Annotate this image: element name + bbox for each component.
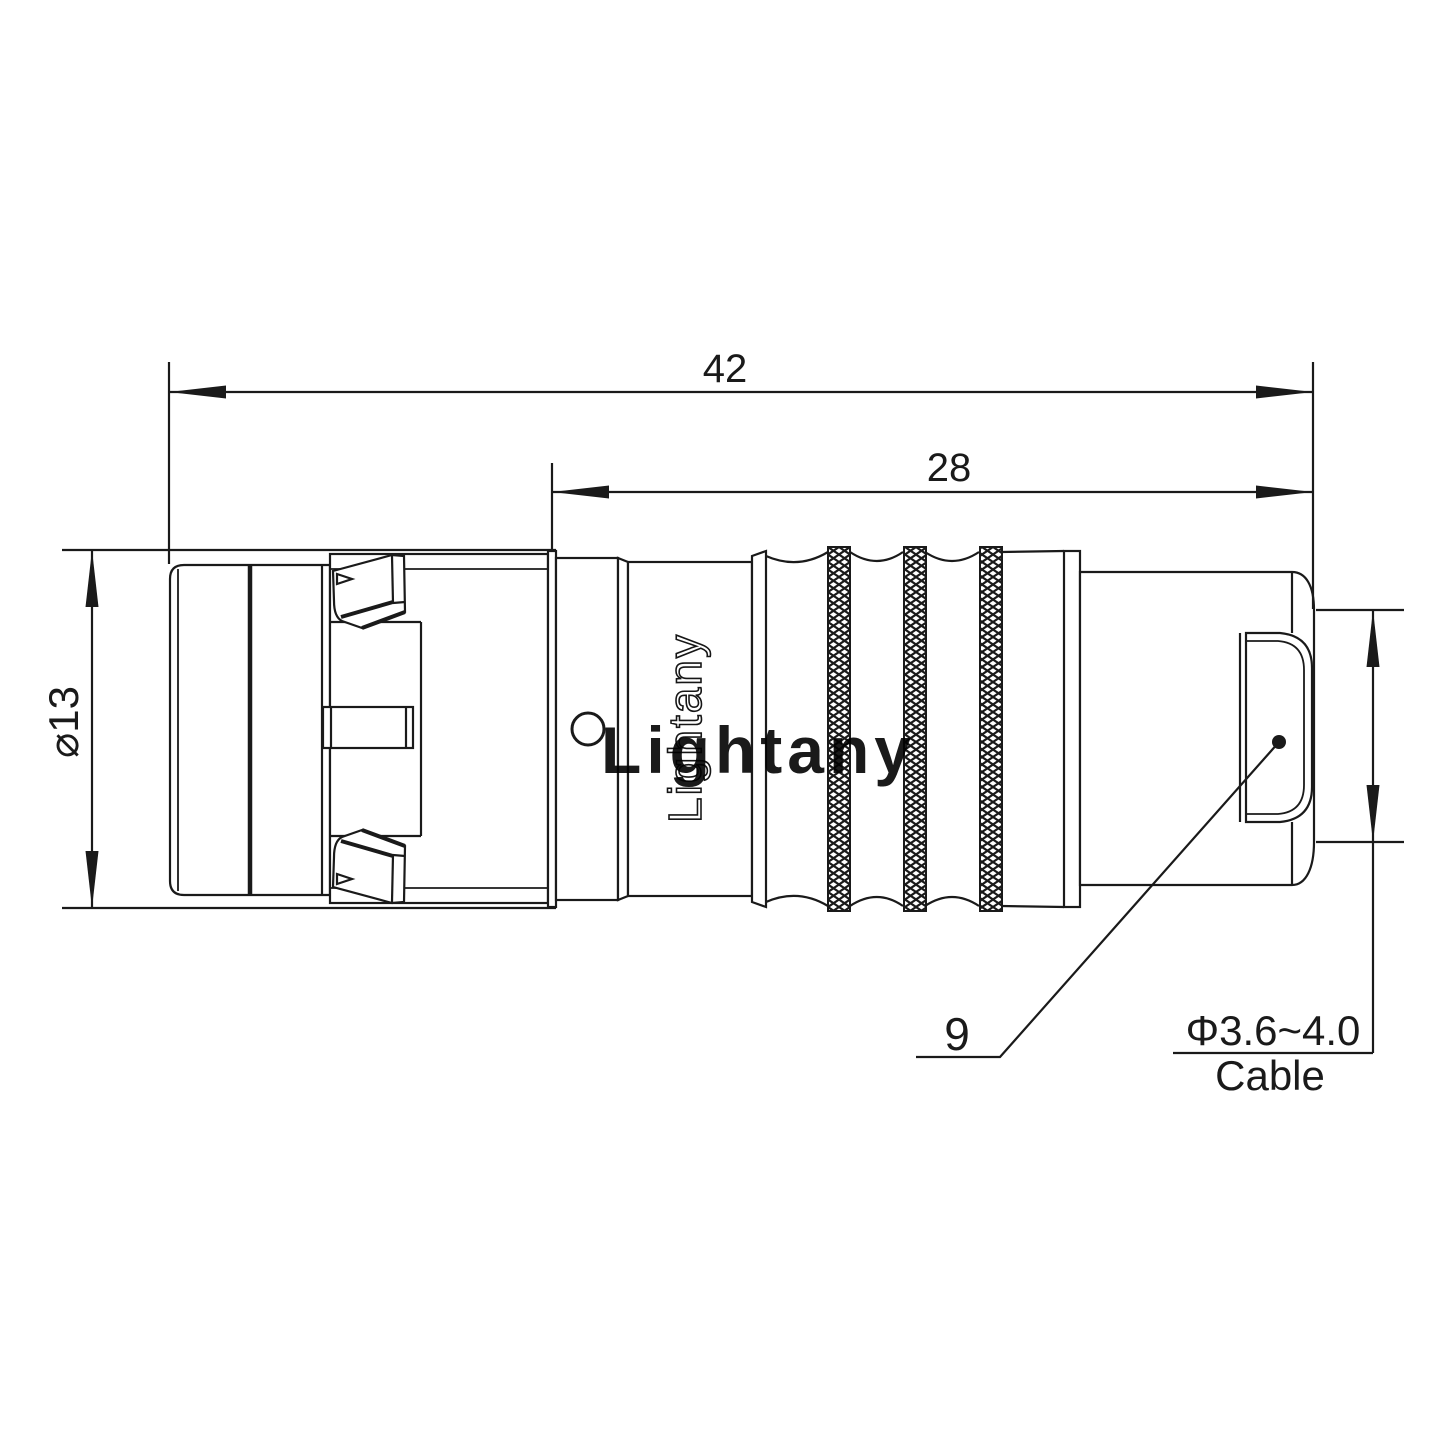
dim-body-length-label: 28 — [927, 446, 972, 490]
dim-cable-word-label: Cable — [1215, 1052, 1325, 1099]
dim-rear-section-label: 9 — [944, 1008, 970, 1060]
latch-sleeve-section — [323, 554, 548, 903]
dim-cable-diameter-label: Φ3.6~4.0 — [1186, 1007, 1361, 1054]
dim-shell-diameter-label: ⌀13 — [40, 686, 87, 758]
dim-overall-length-label: 42 — [703, 347, 748, 391]
knurl-band-3 — [980, 547, 1002, 911]
cable-bushing-recess — [1240, 633, 1312, 822]
latch-center-bar — [323, 707, 413, 748]
cable-end-cap — [1080, 572, 1314, 885]
watermark-text: Lightany — [601, 713, 916, 787]
connector-technical-drawing: Lightany Lightan — [0, 0, 1440, 1440]
dimension-body-length: 28 — [552, 446, 1313, 550]
rear-flange — [1064, 551, 1080, 907]
rear-nut-section — [170, 565, 330, 895]
step-ring — [548, 551, 556, 907]
watermark-layer: Lightany — [601, 713, 916, 787]
technical-drawing-page: Lightany Lightan — [0, 0, 1440, 1440]
